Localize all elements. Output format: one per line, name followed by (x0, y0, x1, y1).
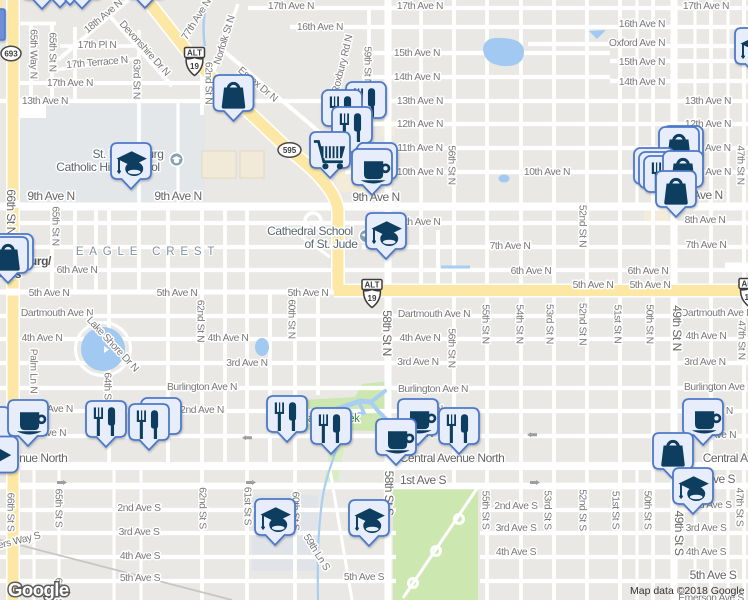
svg-text:5th Ave N: 5th Ave N (29, 288, 70, 299)
svg-text:4th Ave N: 4th Ave N (208, 333, 249, 344)
svg-text:58th St N: 58th St N (380, 310, 394, 356)
svg-text:49th St N: 49th St N (670, 305, 684, 351)
svg-text:Burlington Ave N: Burlington Ave N (167, 382, 237, 393)
svg-text:15th Ave N: 15th Ave N (394, 48, 440, 59)
svg-text:56th St N: 56th St N (446, 145, 457, 184)
svg-text:3rd Ave S: 3rd Ave S (496, 523, 537, 534)
svg-text:9th Ave N: 9th Ave N (154, 189, 201, 203)
svg-text:595: 595 (283, 146, 297, 155)
svg-text:54th St N: 54th St N (514, 304, 525, 343)
svg-text:Cathedral School: Cathedral School (267, 224, 353, 238)
svg-text:Palm Ln N: Palm Ln N (28, 349, 39, 393)
svg-text:50th St N: 50th St N (644, 304, 655, 343)
svg-text:17th Ave N: 17th Ave N (47, 78, 93, 89)
svg-text:17th Ave N: 17th Ave N (268, 1, 314, 12)
svg-text:15th Ave N: 15th Ave N (619, 57, 665, 68)
svg-text:4th Ave S: 4th Ave S (686, 547, 727, 558)
svg-text:53rd St N: 53rd St N (544, 304, 555, 344)
svg-text:Dartmouth Ave N: Dartmouth Ave N (398, 309, 470, 320)
svg-text:17th Pl N: 17th Pl N (78, 40, 117, 51)
svg-text:53rd St S: 53rd St S (542, 490, 553, 530)
svg-text:Burlington Ave N: Burlington Ave N (684, 382, 748, 393)
svg-text:9th Ave N: 9th Ave N (27, 189, 74, 203)
svg-text:5th Ave N: 5th Ave N (288, 288, 329, 299)
svg-text:14th Ave N: 14th Ave N (619, 77, 665, 88)
svg-text:61st St S: 61st St S (242, 487, 253, 526)
svg-text:7th Ave N: 7th Ave N (490, 241, 531, 252)
svg-text:Map data ©2018 Google: Map data ©2018 Google (630, 585, 745, 597)
svg-text:51st St N: 51st St N (612, 305, 623, 344)
svg-text:13th Ave N: 13th Ave N (685, 96, 731, 107)
svg-text:62nd St N: 62nd St N (203, 62, 214, 104)
svg-text:51st St S: 51st St S (610, 491, 621, 530)
svg-text:693: 693 (4, 50, 18, 59)
svg-text:62nd St S: 62nd St S (197, 487, 208, 529)
svg-text:4th Ave S: 4th Ave S (120, 551, 161, 562)
svg-text:4th Ave N: 4th Ave N (22, 333, 63, 344)
svg-text:3rd Ave N: 3rd Ave N (226, 358, 267, 369)
svg-text:5th Ave N: 5th Ave N (157, 288, 198, 299)
svg-text:of St. Jude: of St. Jude (305, 237, 359, 251)
svg-text:10th Ave N: 10th Ave N (397, 167, 443, 178)
svg-text:17th Ave N: 17th Ave N (683, 1, 729, 12)
svg-text:6th Ave N: 6th Ave N (511, 266, 552, 277)
svg-text:ALT: ALT (742, 279, 748, 288)
svg-text:Google: Google (8, 579, 69, 600)
svg-text:5th Ave N: 5th Ave N (630, 280, 671, 291)
svg-text:56th St N: 56th St N (446, 328, 457, 367)
svg-text:8th Ave N: 8th Ave N (685, 215, 726, 226)
svg-text:EAGLE CREST: EAGLE CREST (76, 246, 220, 258)
svg-text:6th Ave N: 6th Ave N (57, 265, 98, 276)
svg-text:5th Ave S: 5th Ave S (690, 568, 737, 582)
svg-text:13th Ave N: 13th Ave N (22, 96, 68, 107)
svg-text:4th Ave N: 4th Ave N (686, 331, 727, 342)
svg-text:65th Way N: 65th Way N (28, 29, 39, 78)
svg-text:2nd Ave S: 2nd Ave S (494, 501, 538, 512)
svg-text:17th Ave N: 17th Ave N (397, 1, 443, 12)
svg-text:9th Ave N: 9th Ave N (352, 190, 399, 204)
svg-text:47th St N: 47th St N (736, 320, 747, 359)
svg-text:19: 19 (190, 62, 199, 71)
svg-text:ALT: ALT (365, 280, 380, 289)
svg-text:11th Ave N: 11th Ave N (397, 143, 442, 154)
svg-text:4th Ave S: 4th Ave S (496, 547, 537, 558)
svg-text:Central Avenue North: Central Avenue North (703, 451, 748, 465)
svg-text:6th Ave N: 6th Ave N (628, 266, 669, 277)
svg-text:47th St S: 47th St S (734, 488, 745, 527)
svg-text:49th St S: 49th St S (672, 511, 686, 556)
svg-text:66th St N: 66th St N (4, 189, 18, 235)
svg-text:55th St N: 55th St N (480, 304, 491, 343)
svg-text:3rd Ave S: 3rd Ave S (119, 527, 160, 538)
svg-text:55th St S: 55th St S (480, 491, 491, 530)
svg-text:52nd St S: 52nd St S (577, 489, 588, 531)
svg-text:19: 19 (368, 294, 377, 303)
svg-text:Dartmouth Ave N: Dartmouth Ave N (681, 308, 748, 319)
svg-text:12th Ave N: 12th Ave N (397, 119, 443, 130)
svg-text:Oxford Ave N: Oxford Ave N (609, 38, 665, 49)
svg-text:2nd Ave S: 2nd Ave S (117, 503, 161, 514)
svg-text:47th St N: 47th St N (735, 145, 746, 184)
svg-text:1st Ave S: 1st Ave S (400, 473, 446, 487)
svg-text:14th Ave N: 14th Ave N (394, 72, 440, 83)
svg-text:65th St N: 65th St N (50, 206, 61, 245)
svg-text:5th Ave S: 5th Ave S (344, 572, 385, 583)
svg-text:16th Ave N: 16th Ave N (619, 19, 665, 30)
svg-text:60th St N: 60th St N (286, 299, 297, 338)
svg-text:Dartmouth Ave N: Dartmouth Ave N (21, 308, 93, 319)
svg-text:ALT: ALT (187, 48, 202, 57)
svg-text:52nd St N: 52nd St N (577, 205, 588, 247)
svg-text:Burlington Ave N: Burlington Ave N (398, 384, 468, 395)
svg-text:66th St S: 66th St S (5, 493, 16, 532)
svg-text:19: 19 (745, 293, 748, 302)
svg-text:10th Ave N: 10th Ave N (524, 167, 570, 178)
svg-text:63rd St N: 63rd St N (131, 59, 142, 99)
svg-text:3rd Ave N: 3rd Ave N (684, 357, 725, 368)
svg-text:59th St N: 59th St N (362, 46, 373, 85)
svg-text:65th St N: 65th St N (47, 32, 58, 71)
svg-text:5th Ave S: 5th Ave S (120, 573, 161, 584)
svg-text:2nd Ave N: 2nd Ave N (180, 405, 224, 416)
svg-text:4th Ave N: 4th Ave N (400, 333, 441, 344)
svg-text:65th St S: 65th St S (53, 489, 64, 528)
svg-text:3rd Ave S: 3rd Ave S (686, 523, 727, 534)
svg-text:5th Ave N: 5th Ave N (573, 280, 614, 291)
svg-text:3rd Ave N: 3rd Ave N (397, 357, 438, 368)
svg-text:52nd St N: 52nd St N (577, 303, 588, 345)
svg-text:62nd St N: 62nd St N (195, 300, 206, 342)
svg-text:7th Ave N: 7th Ave N (686, 240, 727, 251)
svg-text:13th Ave N: 13th Ave N (397, 96, 443, 107)
svg-text:16th Ave N: 16th Ave N (297, 22, 343, 33)
svg-text:50th St S: 50th St S (642, 491, 653, 530)
